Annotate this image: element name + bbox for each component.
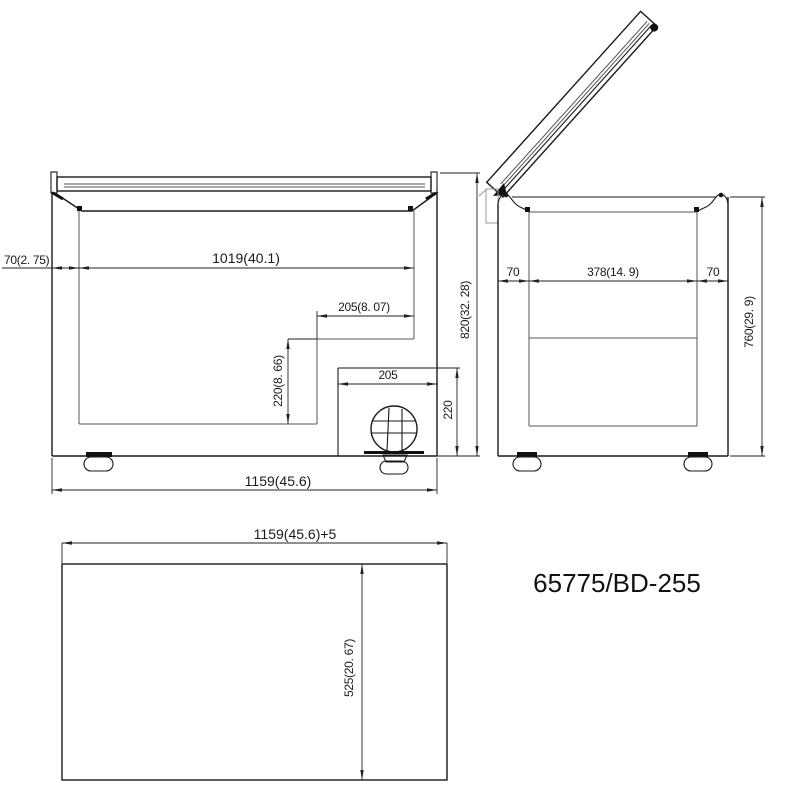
side-right-foot — [684, 452, 712, 471]
side-open-lid — [487, 11, 659, 197]
front-view: 70(2. 75) 1019(40.1) 205(8. 07) 220(8. 6… — [2, 172, 480, 494]
lid-left-tab — [51, 172, 57, 193]
front-right-foot — [380, 455, 408, 474]
top-view-outline — [62, 564, 447, 780]
front-body — [52, 192, 437, 456]
front-dimensions: 70(2. 75) 1019(40.1) 205(8. 07) 220(8. 6… — [2, 173, 480, 494]
dim-wall-thickness: 70(2. 75) — [4, 253, 50, 267]
side-left-foot — [513, 452, 541, 471]
compressor-shell — [371, 406, 417, 452]
compressor — [364, 406, 424, 453]
dim-niche-width: 205 — [378, 368, 398, 382]
side-view: 70 378(14. 9) 70 760(29. 9) — [479, 11, 765, 471]
dim-interior-depth: 378(14. 9) — [587, 265, 639, 279]
side-dimensions: 70 378(14. 9) 70 760(29. 9) — [498, 197, 765, 456]
dim-step-width: 205(8. 07) — [338, 300, 390, 314]
dim-top-depth: 525(20. 67) — [342, 639, 356, 697]
front-rim — [52, 192, 438, 211]
side-inner-liner — [529, 212, 697, 426]
dim-interior-width: 1019(40.1) — [212, 250, 280, 266]
model-number: 65775/BD-255 — [533, 568, 701, 598]
top-view: 525(20. 67) 1159(45.6)+5 — [62, 526, 447, 780]
dim-top-width: 1159(45.6)+5 — [254, 526, 337, 542]
dim-side-height: 760(29. 9) — [742, 296, 756, 348]
side-body — [498, 197, 728, 456]
dim-step-height: 220(8. 66) — [271, 355, 285, 407]
side-rim — [498, 193, 728, 212]
dim-left-wall: 70 — [507, 265, 520, 279]
front-left-foot — [84, 452, 113, 471]
front-lid — [51, 172, 437, 193]
front-inner-liner — [79, 211, 414, 424]
dim-overall-height: 820(32. 28) — [458, 281, 472, 339]
dim-overall-width: 1159(45.6) — [245, 473, 312, 489]
lid-handle — [650, 24, 658, 32]
lid-right-tab — [431, 172, 437, 193]
freezer-dimension-drawing: 70(2. 75) 1019(40.1) 205(8. 07) 220(8. 6… — [0, 0, 800, 800]
dim-niche-height: 220 — [441, 400, 455, 420]
technical-drawing-svg: 70(2. 75) 1019(40.1) 205(8. 07) 220(8. 6… — [0, 0, 800, 800]
dim-right-wall: 70 — [707, 265, 720, 279]
